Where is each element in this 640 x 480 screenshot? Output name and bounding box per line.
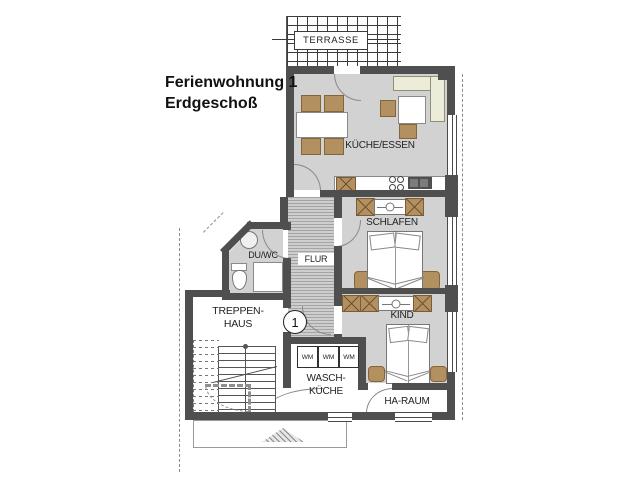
kind-bed (386, 324, 430, 384)
wall-kind-haraum-b (392, 383, 455, 390)
kind-stool-left (368, 366, 385, 382)
wall-right-bottom (447, 372, 455, 420)
shower-tray (253, 262, 283, 292)
corner-bench-right (430, 76, 445, 122)
corner-chair-1 (380, 100, 396, 117)
schlafen-dresser (374, 199, 406, 215)
dining-table (296, 112, 348, 138)
wasch-kueche-label-line1: WASCH- (292, 372, 360, 385)
schlafen-label: SCHLAFEN (350, 217, 434, 229)
washing-machine-2: WM (318, 346, 339, 368)
wall-treppenhaus-right-c (283, 345, 291, 388)
stair-rail-start-dot (243, 344, 248, 349)
schlafen-wardrobe-right (405, 198, 424, 216)
terrace-label-pointer-right (366, 39, 400, 40)
window-wasch-bottom (328, 412, 352, 422)
flur-label: FLUR (298, 253, 334, 265)
sink-basin (410, 179, 418, 187)
window-schlafen-right (447, 217, 457, 285)
kind-wardrobe-1 (342, 295, 361, 312)
floor-plan-canvas: Ferienwohnung 1 Erdgeschoß TERRASSE (0, 0, 640, 480)
sink-basin (420, 179, 428, 187)
kitchen-sink-unit (408, 177, 432, 189)
wall-flur-schlafen-a (334, 197, 342, 218)
corner-table (398, 96, 426, 124)
wall-right-top (447, 66, 455, 115)
wall-duwc-right-a (283, 222, 291, 230)
wall-flur-schlafen-b (334, 246, 342, 306)
kind-label: KIND (360, 310, 444, 322)
kind-stool-right (430, 366, 447, 382)
window-kueche-right (447, 115, 457, 175)
treppenhaus-label-line1: TREPPEN- (200, 305, 276, 318)
corner-chair-2 (399, 124, 417, 139)
double-bed (367, 231, 423, 291)
dining-chair-2 (324, 95, 344, 112)
treppenhaus-label: TREPPEN- HAUS (200, 305, 276, 331)
wall-schlafen-kind (334, 288, 455, 294)
roof-overhang-dashed-line (462, 74, 463, 420)
dining-chair-3 (301, 138, 321, 155)
wall-kueche-schlafen (320, 190, 455, 197)
schlafen-wardrobe-left (356, 198, 375, 216)
plan-title: Ferienwohnung 1 Erdgeschoß (165, 72, 297, 114)
kueche-essen-label: KÜCHE/ESSEN (330, 140, 430, 152)
du-wc-label: DU/WC (240, 249, 286, 261)
terrace-label: TERRASSE (294, 31, 368, 50)
wasch-kueche-label-line2: KÜCHE (292, 385, 360, 398)
wall-right-pier-2 (445, 285, 458, 312)
wall-duwc-bottom (222, 293, 290, 300)
kind-dresser (378, 296, 414, 311)
unit-number-marker: 1 (283, 310, 307, 334)
terrace-label-pointer-left (272, 39, 294, 40)
ha-raum-label: HA-RAUM (376, 396, 438, 408)
duwc-corner-dashed-line (203, 212, 224, 233)
burner-icon (389, 176, 396, 183)
property-dashdot-line (179, 228, 180, 472)
entrance-porch (193, 420, 347, 448)
wall-treppenhaus-right-a (283, 300, 291, 308)
wall-flur-left (280, 197, 288, 223)
washing-machine-3: WM (339, 346, 359, 368)
plan-title-line2: Erdgeschoß (165, 93, 297, 114)
window-kind-right (447, 312, 457, 372)
plan-title-line1: Ferienwohnung 1 (165, 72, 297, 93)
kitchen-cabinet (336, 177, 356, 191)
dining-chair-1 (301, 95, 321, 112)
wasch-kueche-label: WASCH- KÜCHE (292, 372, 360, 398)
washing-machine-1: WM (297, 346, 318, 368)
wall-treppenhaus-right-b (283, 332, 291, 345)
treppenhaus-label-line2: HAUS (200, 318, 276, 331)
window-haraum-bottom (395, 412, 432, 422)
wall-right-pier-1 (445, 175, 458, 217)
wall-duwc-right-b (283, 258, 291, 300)
burner-icon (397, 176, 404, 183)
stove-cooktop (386, 177, 406, 189)
wall-wasch-top (288, 337, 366, 344)
wall-treppenhaus-left (185, 290, 193, 420)
